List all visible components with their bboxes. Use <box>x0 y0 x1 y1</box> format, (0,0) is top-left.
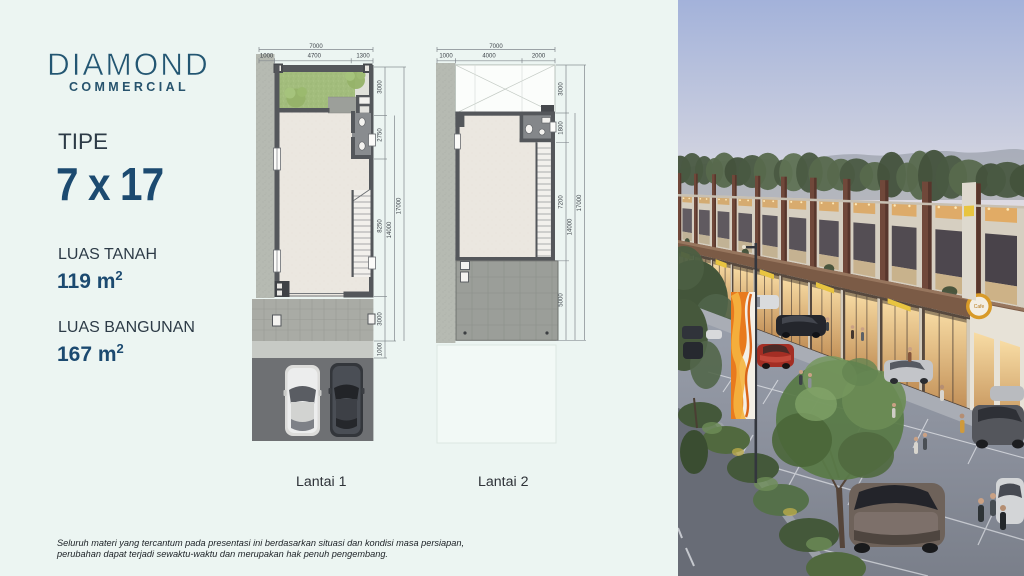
svg-text:Cafe: Cafe <box>974 304 985 310</box>
svg-text:4700: 4700 <box>308 54 322 60</box>
svg-text:2750: 2750 <box>378 128 384 142</box>
svg-text:7200: 7200 <box>559 195 565 209</box>
svg-text:1000: 1000 <box>378 342 384 356</box>
svg-text:3000: 3000 <box>378 312 384 326</box>
svg-text:1000: 1000 <box>439 54 453 60</box>
svg-text:1800: 1800 <box>559 121 565 135</box>
svg-text:2000: 2000 <box>532 54 546 60</box>
svg-text:14000: 14000 <box>387 221 393 238</box>
svg-text:1000: 1000 <box>260 54 274 60</box>
svg-text:1300: 1300 <box>356 54 370 60</box>
svg-text:7000: 7000 <box>309 44 323 50</box>
svg-text:14000: 14000 <box>568 218 574 235</box>
svg-text:17000: 17000 <box>577 194 583 211</box>
svg-text:5000: 5000 <box>559 293 565 307</box>
svg-text:7000: 7000 <box>489 44 503 50</box>
svg-text:4000: 4000 <box>482 54 496 60</box>
svg-text:3000: 3000 <box>378 80 384 94</box>
svg-text:3000: 3000 <box>559 82 565 96</box>
svg-text:8250: 8250 <box>378 219 384 233</box>
svg-text:17000: 17000 <box>397 197 403 214</box>
